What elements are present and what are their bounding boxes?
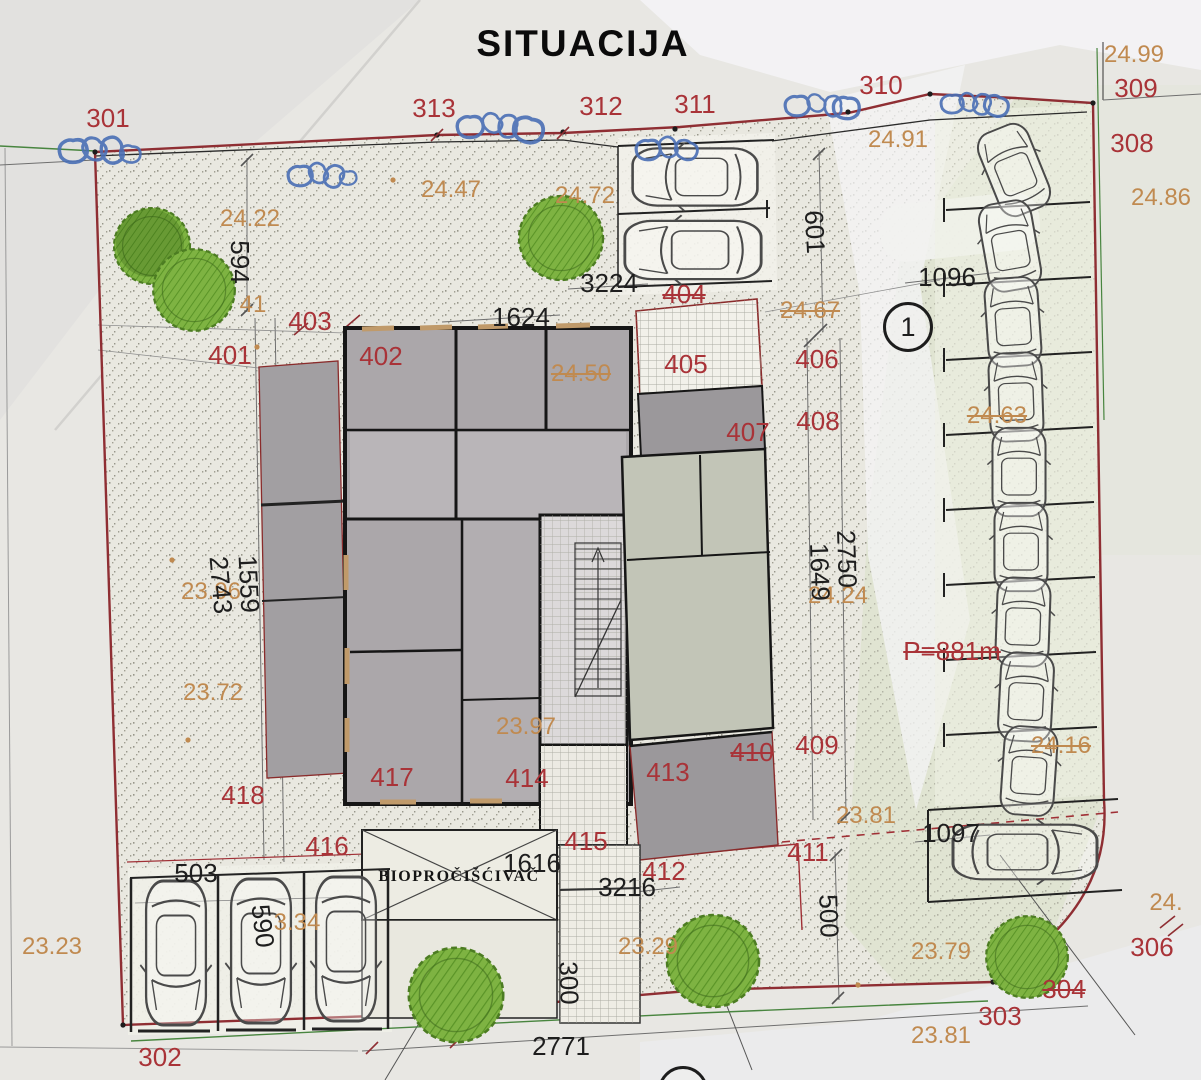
parcel-number-label: 313 [412,95,455,121]
parcel-number-label: 310 [859,72,902,98]
elevation-label: 24.99 [1104,43,1164,67]
dimension-label: 590 [247,903,278,949]
marker-circle-2: 2 [658,1066,708,1080]
parcel-number-label: 306 [1130,934,1173,960]
elevation-label: 24. [1149,891,1182,915]
marker-circle-1: 1 [883,302,933,352]
site-plan-scan: SITUACIJA BIOPROČIŠĆIVAČ 1 2 30131331231… [0,0,1201,1080]
parcel-number-label: 302 [138,1044,181,1070]
parcel-number-label: 401 [208,342,251,368]
parcel-number-label: 415 [564,828,607,854]
parcel-number-label: 409 [795,732,838,758]
parcel-number-label: 418 [221,782,264,808]
elevation-label: 23.79 [911,940,971,964]
dimension-label: 503 [174,860,217,886]
parcel-number-label: 309 [1114,75,1157,101]
dimension-label: 2743 [206,555,237,615]
elevation-label: 24.16 [1031,734,1091,758]
dimension-label: 1096 [918,264,976,290]
parcel-number-label: 404 [662,281,705,307]
parcel-number-label: 410 [730,739,773,765]
dimension-label: 2750 [833,530,861,589]
parcel-number-label: 414 [505,765,548,791]
elevation-label: 23.97 [496,715,556,739]
dimension-label: 1559 [235,554,264,613]
dimension-label: 1649 [806,543,834,602]
elevation-label: 41 [240,293,267,317]
dimension-label: 3224 [580,270,638,296]
parcel-number-label: 304 [1042,976,1085,1002]
elevation-label: 23.29 [618,935,678,959]
elevation-label: 24.63 [967,404,1027,428]
elevation-label: 24.50 [551,362,611,386]
parcel-number-label: 403 [288,308,331,334]
dimension-label: 601 [801,210,829,255]
dimension-label: 500 [815,894,842,938]
parcel-number-label: 301 [86,105,129,131]
elevation-label: 24.47 [421,178,481,202]
dimension-label: 1097 [922,820,980,846]
elevation-label: 23.81 [911,1024,971,1048]
parcel-number-label: 413 [646,759,689,785]
elevation-label: 24.91 [868,128,928,152]
parcel-number-label: P=881m [903,638,1001,664]
elevation-label: 24.86 [1131,186,1191,210]
parcel-number-label: 416 [305,833,348,859]
annotation-layer: SITUACIJA BIOPROČIŠĆIVAČ 1 2 30131331231… [0,0,1201,1080]
dimension-label: 594 [227,240,253,283]
elevation-label: 24.22 [220,207,280,231]
parcel-number-label: 311 [674,91,715,117]
elevation-label: 23.23 [22,935,82,959]
dimension-label: 2771 [532,1033,590,1059]
parcel-number-label: 312 [579,93,622,119]
parcel-number-label: 417 [370,764,413,790]
elevation-label: 23.72 [183,681,243,705]
elevation-label: 24.72 [555,184,615,208]
parcel-number-label: 411 [787,839,828,865]
dimension-label: 1624 [492,304,550,330]
parcel-number-label: 407 [726,419,769,445]
elevation-label: 23.81 [836,804,896,828]
elevation-label: 24.67 [780,299,840,323]
parcel-number-label: 303 [978,1003,1021,1029]
dimension-label: 3216 [598,874,656,900]
elevation-label: 3.34 [274,911,321,935]
dimension-label: 300 [555,961,582,1005]
plan-title: SITUACIJA [476,23,689,65]
parcel-number-label: 408 [796,408,839,434]
parcel-number-label: 405 [664,351,707,377]
parcel-number-label: 406 [795,346,838,372]
dimension-label: 1616 [503,850,561,876]
parcel-number-label: 402 [359,343,402,369]
parcel-number-label: 308 [1110,130,1153,156]
